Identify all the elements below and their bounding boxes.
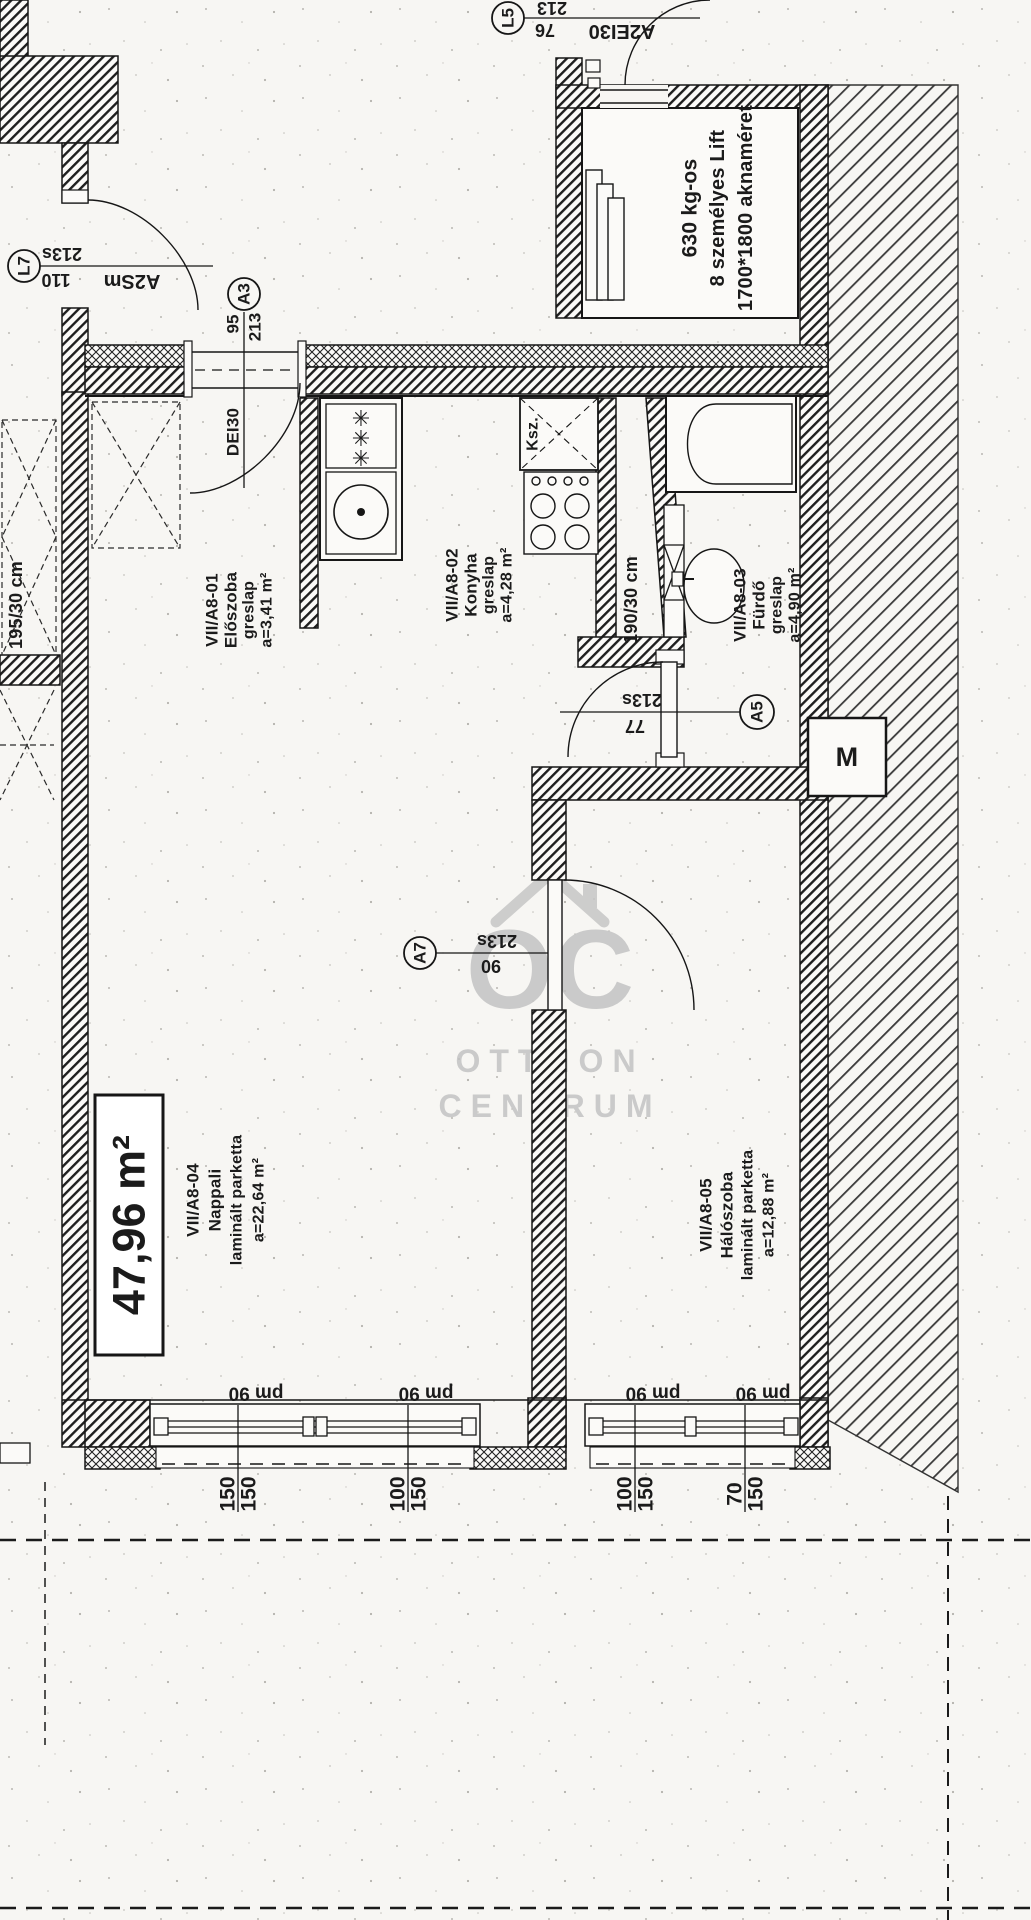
room-name: Előszoba xyxy=(222,572,241,649)
marker-a5-id: A5 xyxy=(748,701,767,723)
total-area-value: 47,96 m² xyxy=(104,1135,155,1315)
room-area: a=3,41 m² xyxy=(259,572,276,647)
dim-value: 70 xyxy=(724,1482,747,1505)
door-leaf xyxy=(548,880,562,1010)
utility-shaft-ksz: Ksz. xyxy=(520,398,598,470)
marker-a3-dim-left: 95 xyxy=(224,315,243,334)
meter-box: M xyxy=(808,718,886,796)
marker-a5-dim-bottom: 77 xyxy=(625,716,645,736)
marker-a3-dim-right: 213 xyxy=(246,313,265,341)
living-room-window xyxy=(150,1404,480,1468)
room-id: VII/A8-03 xyxy=(731,568,750,642)
lift-label-line3: 1700*1800 aknaméret xyxy=(735,105,757,311)
marker-l7-dim-bottom: 110 xyxy=(41,270,70,290)
lift-label-line2: 8 személyes Lift xyxy=(707,130,729,287)
door-leaf xyxy=(661,662,677,757)
room-id: VII/A8-04 xyxy=(184,1163,203,1237)
floor-plan-drawing: OC OTTHON CENTRUM xyxy=(0,0,1031,1920)
dim-value: 100 xyxy=(614,1476,637,1511)
room-area: a=4,90 m² xyxy=(787,567,804,642)
marker-a7-id: A7 xyxy=(411,942,430,964)
room-area: a=4,28 m² xyxy=(499,547,516,622)
room-name: Fürdő xyxy=(750,580,769,629)
marker-l5-door-code: A2EI30 xyxy=(589,20,656,42)
appliance-asterisks: ✳ ✳ ✳ xyxy=(352,406,370,471)
marker-l5-id: L5 xyxy=(499,8,518,28)
bedroom-window xyxy=(585,1404,800,1468)
room-area: a=12,88 m² xyxy=(761,1173,778,1257)
marker-a3-id: A3 xyxy=(235,283,254,305)
parapet-label: pm 90 xyxy=(736,1383,791,1404)
marker-l7-dim-top: 213s xyxy=(42,244,82,264)
dim-value: 150 xyxy=(408,1476,431,1511)
stove xyxy=(524,472,598,554)
room-floor: greslap xyxy=(241,581,258,639)
lift-shaft: 630 kg-os 8 személyes Lift 1700*1800 akn… xyxy=(582,105,798,318)
parapet-label: pm 90 xyxy=(229,1383,284,1404)
room-floor: greslap xyxy=(481,556,498,614)
meter-box-label: M xyxy=(836,742,859,772)
parapet-label: pm 90 xyxy=(626,1383,681,1404)
bathtub xyxy=(666,396,796,492)
entry-door-type-label: DEI30 xyxy=(224,408,243,456)
floor-plan-page: OC OTTHON CENTRUM xyxy=(0,0,1031,1920)
watermark-chimney-icon xyxy=(583,884,597,908)
marker-a7-dim-top: 213s xyxy=(477,931,517,951)
dim-value: 150 xyxy=(238,1476,261,1511)
total-area-box: 47,96 m² xyxy=(95,1095,163,1355)
marker-a7-dim-bottom: 90 xyxy=(481,956,501,976)
room-id: VII/A8-02 xyxy=(443,548,462,622)
room-floor: greslap xyxy=(769,576,786,634)
marker-l7-door-code: A2Sm xyxy=(104,270,161,292)
dim-value: 150 xyxy=(635,1476,658,1511)
bath-radiator xyxy=(664,505,684,637)
dim-value: 150 xyxy=(217,1476,240,1511)
room-id: VII/A8-05 xyxy=(697,1178,716,1252)
parapet-label: pm 90 xyxy=(399,1383,454,1404)
marker-l5-dim-bottom: 76 xyxy=(535,20,555,40)
room-name: Nappali xyxy=(206,1169,225,1232)
shaft-label: Ksz. xyxy=(525,417,542,451)
marker-l7-id: L7 xyxy=(15,256,34,276)
marker-a5-dim-top: 213s xyxy=(622,690,662,710)
room-label-konyha: VII/A8-02 Konyha greslap a=4,28 m² xyxy=(443,547,516,622)
radiator-bath-label: 190/30 cm xyxy=(621,556,641,644)
left-fragment xyxy=(0,1443,30,1463)
radiator-left-label: 195/30 cm xyxy=(6,561,26,649)
lift-label-line1: 630 kg-os xyxy=(679,159,702,258)
room-label-eloszoba: VII/A8-01 Előszoba greslap a=3,41 m² xyxy=(203,572,276,649)
room-floor: laminált parketta xyxy=(229,1135,246,1266)
room-name: Konyha xyxy=(462,553,481,617)
svg-text:✳: ✳ xyxy=(352,446,370,471)
dim-value: 100 xyxy=(387,1476,410,1511)
room-id: VII/A8-01 xyxy=(203,573,222,647)
room-floor: laminált parketta xyxy=(740,1150,757,1281)
marker-l5-dim-top: 213 xyxy=(537,0,567,18)
kitchen-counter: ✳ ✳ ✳ xyxy=(320,398,402,560)
room-area: a=22,64 m² xyxy=(251,1158,268,1242)
dim-value: 150 xyxy=(745,1476,768,1511)
room-name: Hálószoba xyxy=(718,1171,737,1258)
